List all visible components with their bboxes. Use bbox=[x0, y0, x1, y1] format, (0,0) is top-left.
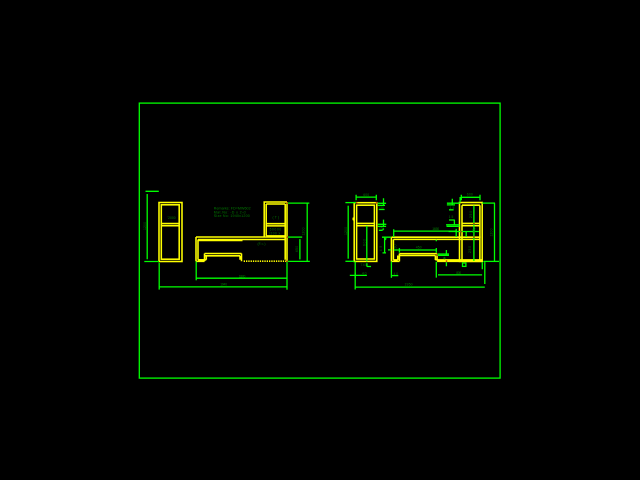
svg-text:1200: 1200 bbox=[489, 228, 493, 236]
svg-text:Size No: 1940x1200: Size No: 1940x1200 bbox=[214, 214, 250, 218]
svg-text:1200: 1200 bbox=[302, 227, 306, 235]
svg-text:1950: 1950 bbox=[405, 282, 413, 286]
svg-text:600: 600 bbox=[363, 193, 369, 197]
svg-text:(T): (T) bbox=[273, 216, 280, 220]
svg-text:40: 40 bbox=[394, 272, 399, 276]
svg-text:15: 15 bbox=[449, 215, 454, 219]
svg-text:45: 45 bbox=[379, 246, 383, 252]
svg-text:1650: 1650 bbox=[432, 227, 439, 231]
svg-text:150: 150 bbox=[379, 206, 384, 210]
svg-text:1940: 1940 bbox=[220, 283, 227, 287]
svg-text:1200: 1200 bbox=[143, 222, 147, 230]
svg-text:150: 150 bbox=[379, 227, 384, 231]
svg-text:600: 600 bbox=[467, 193, 473, 197]
svg-text:/200 x.: /200 x. bbox=[269, 231, 281, 235]
svg-text:450: 450 bbox=[416, 246, 422, 250]
svg-text:600: 600 bbox=[362, 239, 366, 246]
svg-text:40: 40 bbox=[362, 272, 367, 276]
svg-text:250: 250 bbox=[468, 246, 472, 253]
svg-text:1800: 1800 bbox=[239, 274, 246, 278]
svg-text:1200: 1200 bbox=[344, 227, 348, 235]
svg-text:(F.=.): (F.=.) bbox=[258, 242, 266, 246]
svg-text:250: 250 bbox=[469, 211, 473, 218]
svg-text:15: 15 bbox=[450, 206, 455, 210]
svg-text:740: 740 bbox=[361, 263, 368, 267]
svg-text:450: 450 bbox=[295, 246, 299, 253]
svg-text:'2000: '2000 bbox=[167, 216, 176, 220]
svg-text:800: 800 bbox=[456, 271, 461, 275]
